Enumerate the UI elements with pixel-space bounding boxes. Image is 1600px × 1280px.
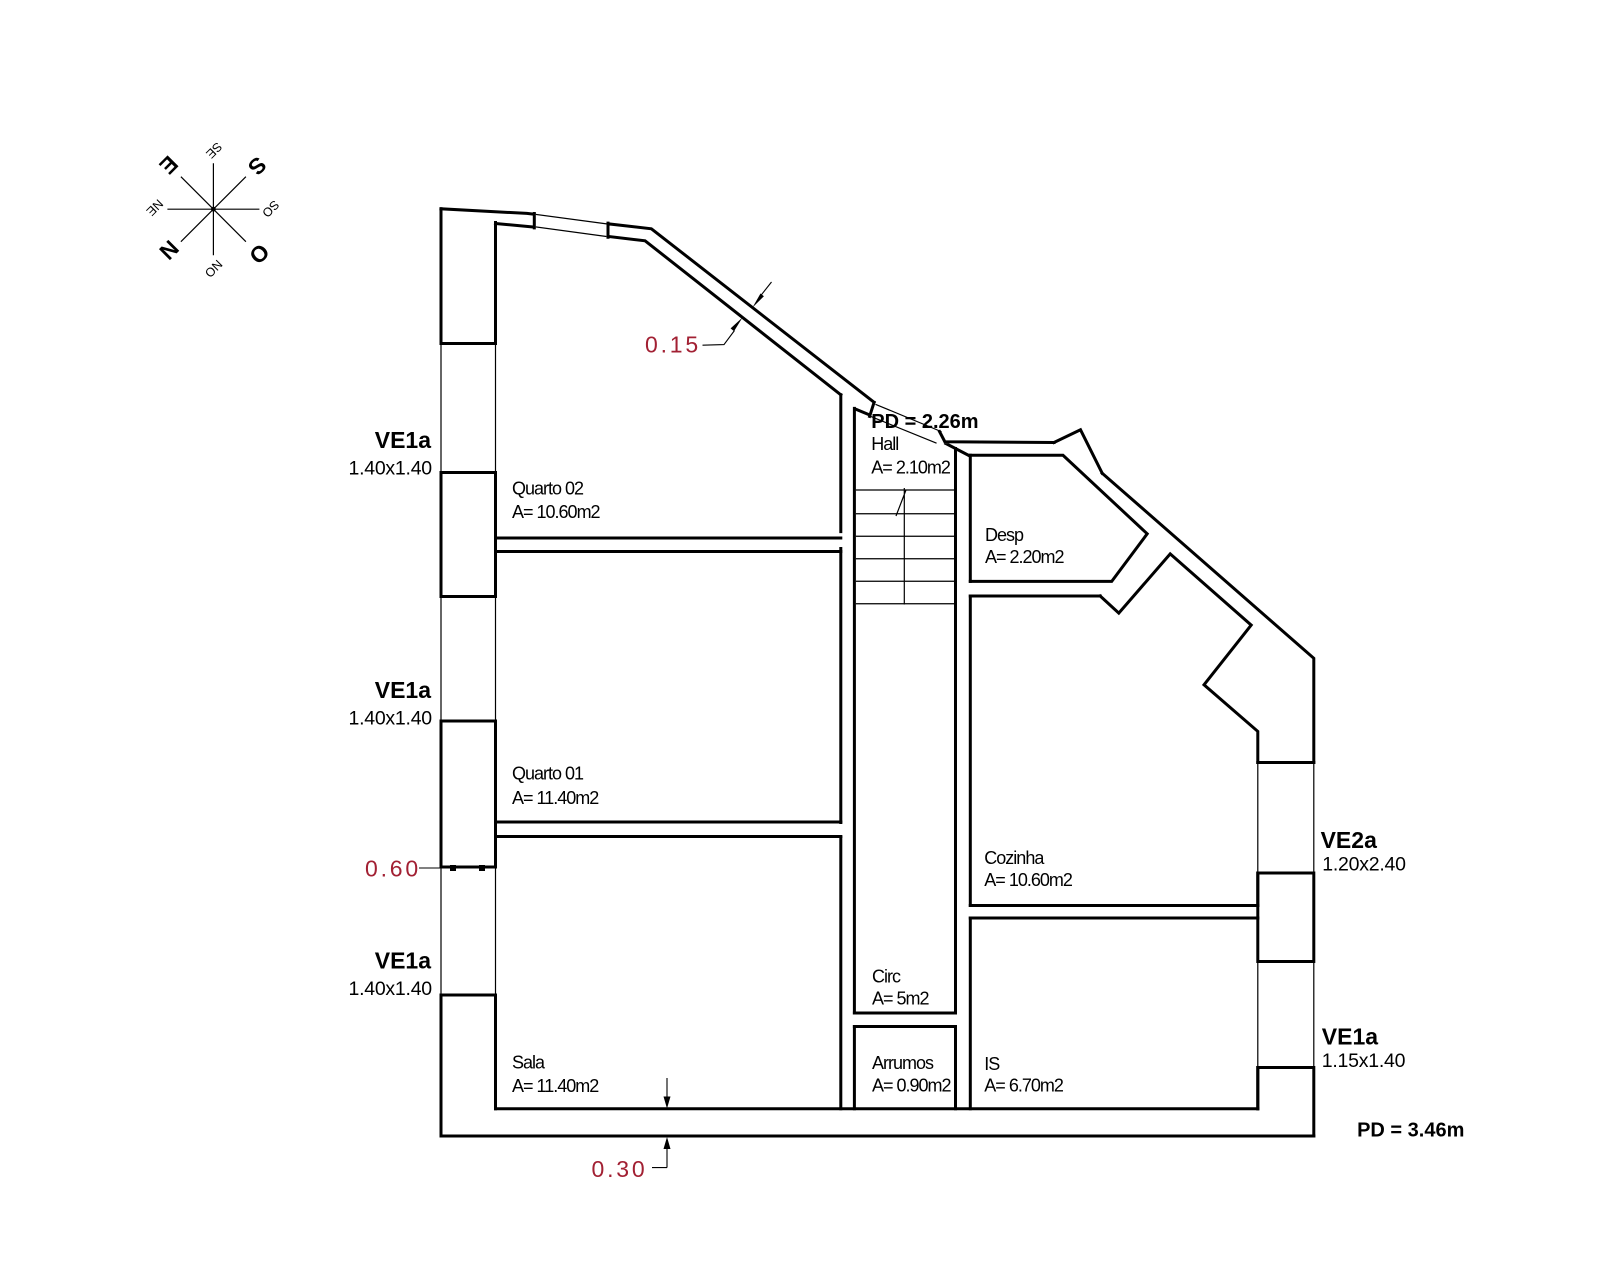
svg-text:Quarto 02: Quarto 02 <box>512 479 584 499</box>
svg-text:A= 6.70m2: A= 6.70m2 <box>984 1076 1064 1096</box>
svg-text:0.30: 0.30 <box>592 1156 648 1182</box>
svg-text:PD = 2.26m: PD = 2.26m <box>871 411 978 433</box>
svg-text:1.40x1.40: 1.40x1.40 <box>348 978 432 1000</box>
svg-text:1.40x1.40: 1.40x1.40 <box>348 708 432 730</box>
svg-text:0.60: 0.60 <box>365 856 421 882</box>
svg-text:A= 5m2: A= 5m2 <box>872 989 930 1009</box>
svg-text:A= 11.40m2: A= 11.40m2 <box>512 788 599 808</box>
svg-text:Desp: Desp <box>985 525 1024 545</box>
svg-text:Arrumos: Arrumos <box>872 1053 934 1073</box>
svg-text:Circ: Circ <box>872 967 901 987</box>
svg-text:1.40x1.40: 1.40x1.40 <box>348 458 432 480</box>
svg-text:VE1a: VE1a <box>375 427 431 453</box>
svg-text:PD = 3.46m: PD = 3.46m <box>1357 1119 1464 1141</box>
svg-text:A= 2.20m2: A= 2.20m2 <box>985 547 1065 567</box>
svg-text:VE1a: VE1a <box>375 948 431 974</box>
svg-text:Quarto 01: Quarto 01 <box>512 764 584 784</box>
svg-text:A= 10.60m2: A= 10.60m2 <box>984 870 1073 890</box>
svg-text:Hall: Hall <box>871 434 898 454</box>
svg-text:A= 10.60m2: A= 10.60m2 <box>512 502 601 522</box>
svg-text:1.20x2.40: 1.20x2.40 <box>1322 854 1406 876</box>
svg-text:1.15x1.40: 1.15x1.40 <box>1322 1050 1406 1072</box>
svg-text:VE1a: VE1a <box>1322 1024 1378 1050</box>
svg-text:0.15: 0.15 <box>645 332 701 358</box>
svg-text:A= 11.40m2: A= 11.40m2 <box>512 1076 599 1096</box>
svg-text:A= 2.10m2: A= 2.10m2 <box>871 458 951 478</box>
svg-text:IS: IS <box>984 1054 1000 1074</box>
svg-text:VE2a: VE2a <box>1321 827 1377 853</box>
svg-text:Cozinha: Cozinha <box>984 848 1045 868</box>
svg-text:VE1a: VE1a <box>375 677 431 703</box>
svg-text:Sala: Sala <box>512 1053 546 1073</box>
svg-text:A= 0.90m2: A= 0.90m2 <box>872 1076 952 1096</box>
